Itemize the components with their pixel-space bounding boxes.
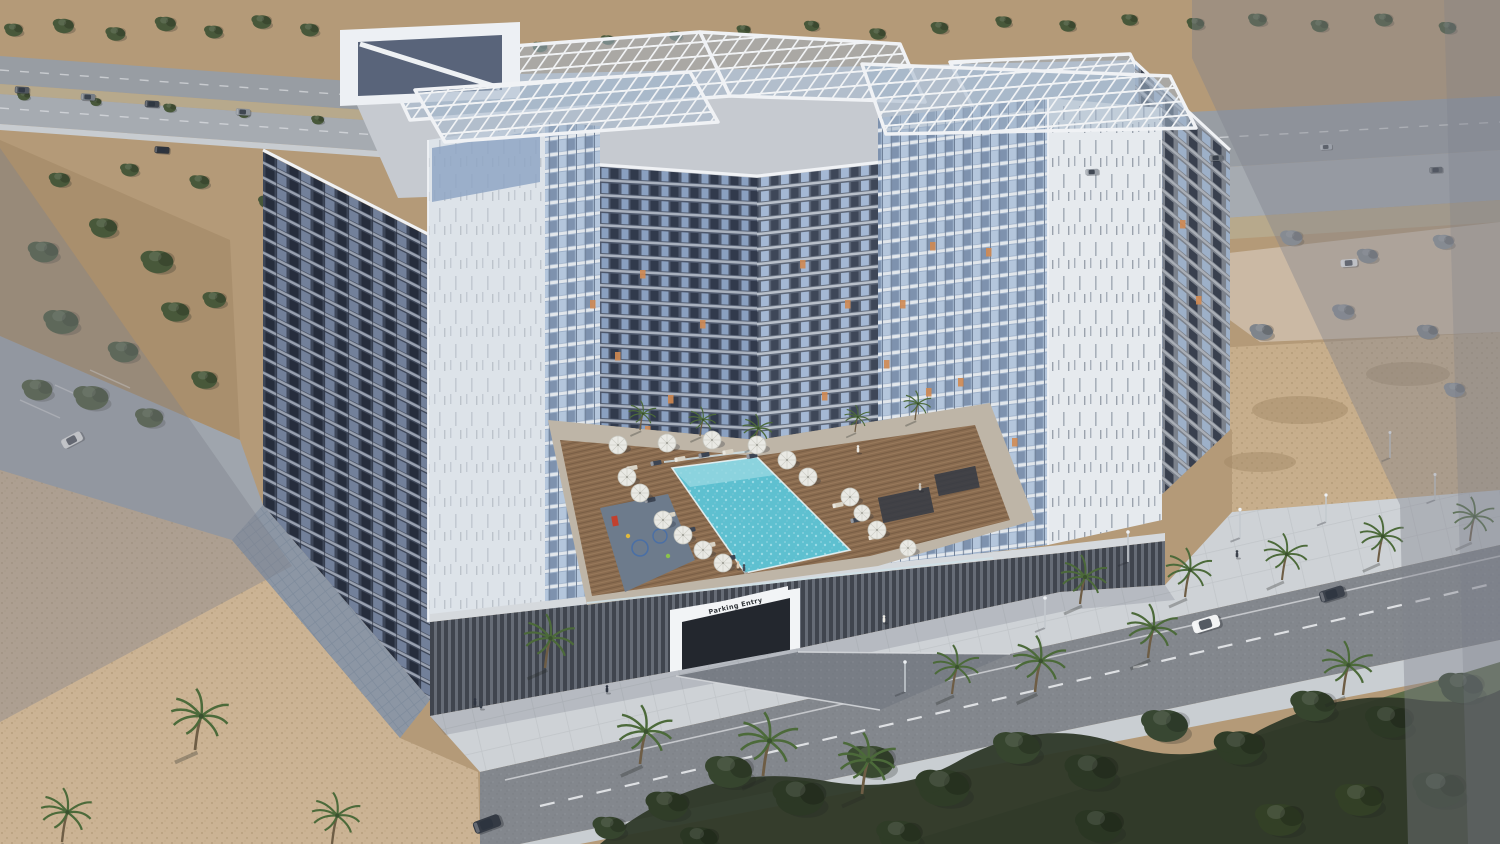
architectural-rendering: Parking Entry [0,0,1500,844]
lit-window [800,260,806,269]
lit-window [590,300,596,309]
lit-window [926,388,932,397]
car [154,146,171,155]
car [81,93,97,101]
lit-window [930,242,936,251]
lit-window [822,392,828,401]
rendering-canvas: Parking Entry [0,0,1500,844]
lit-window [1180,220,1186,229]
lit-window [615,352,621,361]
lit-window [845,300,851,309]
lit-window [884,360,890,369]
lit-window [986,248,992,257]
lit-window [700,320,706,329]
lit-window [900,300,906,309]
lit-window [668,395,674,404]
car [145,100,161,108]
car [15,86,31,94]
lit-window [640,270,646,279]
lit-window [1196,296,1202,305]
car [1085,169,1100,177]
car [236,108,252,116]
tree-foliage [876,821,924,844]
lit-window [958,378,964,387]
lit-window [1012,438,1018,447]
car [1209,155,1224,163]
